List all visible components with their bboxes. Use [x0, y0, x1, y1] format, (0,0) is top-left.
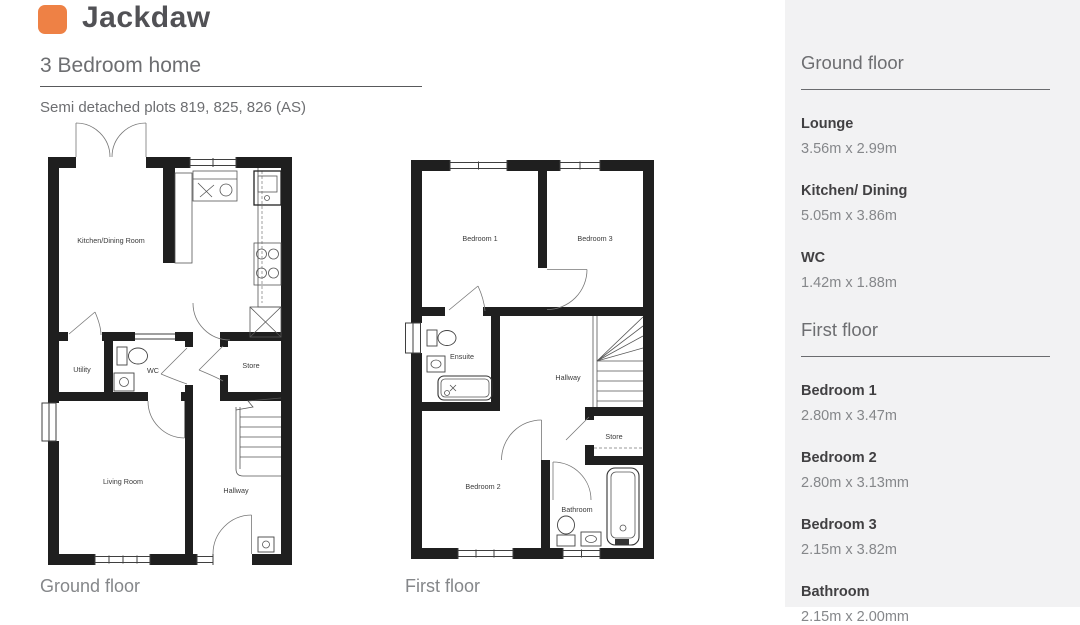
room-name: Bathroom — [801, 584, 1050, 600]
stairs-icon-first — [593, 316, 643, 407]
room-dimensions: 2.15m x 2.00mm — [801, 609, 1050, 625]
meter-box-icon — [258, 537, 274, 552]
room-dimension-item: Bedroom 3 2.15m x 3.82m — [801, 517, 1050, 558]
room-name: Lounge — [801, 116, 1050, 132]
room-name: Bedroom 1 — [801, 383, 1050, 399]
wc-fixtures — [114, 347, 148, 391]
ensuite-fixtures — [427, 330, 492, 400]
sidebar-section-title: First floor — [801, 319, 1050, 357]
home-type-subtitle: 3 Bedroom home — [40, 54, 201, 78]
room-label-ensuite: Ensuite — [450, 352, 474, 361]
room-label-store-ground: Store — [242, 361, 259, 370]
room-dimensions: 2.80m x 3.13mm — [801, 475, 1050, 491]
room-name: Kitchen/ Dining — [801, 183, 1050, 199]
basin-icon — [427, 356, 445, 372]
room-label-hallway-first: Hallway — [555, 373, 581, 382]
room-dimension-item: WC 1.42m x 1.88m — [801, 250, 1050, 291]
fridge-icon — [175, 173, 192, 263]
room-name: WC — [801, 250, 1050, 266]
room-dimensions: 5.05m x 3.86m — [801, 208, 1050, 224]
room-label-bathroom: Bathroom — [561, 505, 592, 514]
room-dimensions: 2.15m x 3.82m — [801, 542, 1050, 558]
plots-line: Semi detached plots 819, 825, 826 (AS) — [40, 99, 306, 116]
dimensions-sidebar: Ground floor Lounge 3.56m x 2.99m Kitche… — [785, 0, 1080, 607]
basin-icon — [581, 532, 601, 546]
room-dimension-item: Bedroom 2 2.80m x 3.13mm — [801, 450, 1050, 491]
room-dimension-item: Lounge 3.56m x 2.99m — [801, 116, 1050, 157]
sidebar-section-title: Ground floor — [801, 52, 1050, 90]
brand-logo-mark — [38, 5, 67, 34]
header-divider — [40, 86, 422, 87]
room-dimension-item: Bathroom 2.15m x 2.00mm — [801, 584, 1050, 625]
room-label-bedroom3: Bedroom 3 — [577, 234, 612, 243]
room-dimensions: 3.56m x 2.99m — [801, 141, 1050, 157]
sidebar-section-first-floor: First floor Bedroom 1 2.80m x 3.47m Bedr… — [801, 319, 1050, 625]
stairs-icon-ground — [236, 398, 281, 476]
room-name: Bedroom 3 — [801, 517, 1050, 533]
first-doors — [449, 270, 591, 501]
first-floor-plan: Bedroom 1 Bedroom 3 Ensuite Hallway Bedr… — [405, 150, 660, 570]
sidebar-section-ground-floor: Ground floor Lounge 3.56m x 2.99m Kitche… — [801, 52, 1050, 291]
ground-floor-caption: Ground floor — [40, 576, 140, 597]
room-dimension-item: Bedroom 1 2.80m x 3.47m — [801, 383, 1050, 424]
basin-icon — [114, 373, 134, 391]
room-dimension-item: Kitchen/ Dining 5.05m x 3.86m — [801, 183, 1050, 224]
toilet-icon — [557, 516, 575, 546]
room-name: Bedroom 2 — [801, 450, 1050, 466]
room-label-store-first: Store — [605, 432, 622, 441]
first-floor-caption: First floor — [405, 576, 480, 597]
room-label-wc: WC — [147, 366, 159, 375]
room-label-utility: Utility — [73, 365, 91, 374]
appliance-icon — [193, 171, 237, 201]
room-label-kitchen-dining: Kitchen/Dining Room — [77, 236, 145, 245]
room-dimensions: 2.80m x 3.47m — [801, 408, 1050, 424]
room-label-bedroom2: Bedroom 2 — [465, 482, 500, 491]
ground-floor-plan: Kitchen/Dining Room Utility WC Store Liv… — [40, 115, 300, 570]
room-label-bedroom1: Bedroom 1 — [462, 234, 497, 243]
toilet-icon — [427, 330, 456, 346]
first-walls — [411, 160, 654, 559]
kitchen-units — [175, 168, 281, 337]
room-label-living: Living Room — [103, 477, 143, 486]
plot-name-title: Jackdaw — [82, 1, 211, 35]
bath-icon — [607, 468, 639, 545]
room-dimensions: 1.42m x 1.88m — [801, 275, 1050, 291]
room-label-hallway-ground: Hallway — [223, 486, 249, 495]
shower-bath-icon — [438, 376, 492, 400]
toilet-icon — [117, 347, 148, 365]
